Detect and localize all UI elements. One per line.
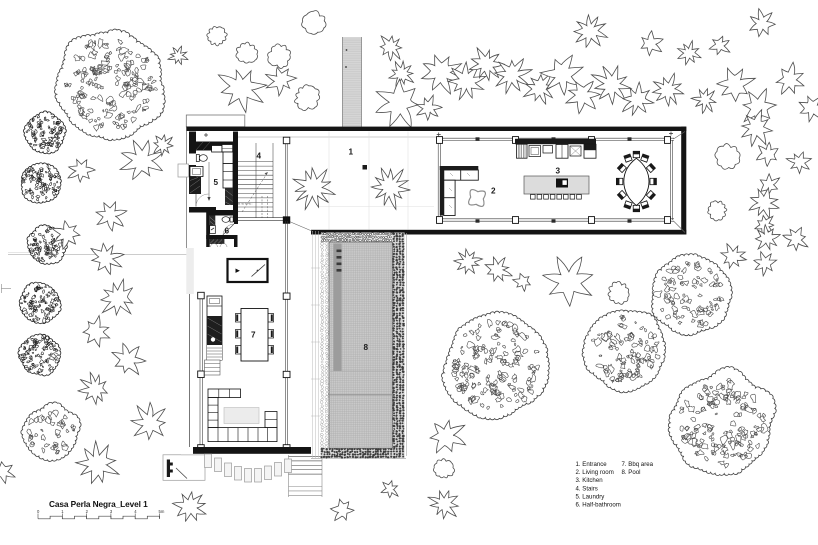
svg-text:3: 3 <box>556 167 561 176</box>
svg-text:2: 2 <box>491 187 496 196</box>
svg-text:5: 5 <box>214 178 219 187</box>
svg-text:Casa Perla Negra_Level 1: Casa Perla Negra_Level 1 <box>49 499 148 509</box>
svg-text:5. Laundry: 5. Laundry <box>576 493 606 500</box>
svg-text:8. Pool: 8. Pool <box>622 469 641 476</box>
svg-text:6. Half-bathroom: 6. Half-bathroom <box>576 502 621 509</box>
svg-text:7: 7 <box>251 331 256 340</box>
svg-text:5m: 5m <box>159 509 165 514</box>
svg-text:2. Living room: 2. Living room <box>576 469 614 476</box>
svg-text:4. Stairs: 4. Stairs <box>576 485 598 492</box>
svg-text:8: 8 <box>364 343 369 352</box>
svg-text:6: 6 <box>225 227 230 236</box>
svg-text:1. Entrance: 1. Entrance <box>576 461 608 468</box>
svg-text:1: 1 <box>349 148 354 157</box>
svg-text:3. Kitchen: 3. Kitchen <box>576 477 603 484</box>
svg-text:4: 4 <box>257 152 262 161</box>
svg-text:7. Bbq area: 7. Bbq area <box>622 461 654 468</box>
